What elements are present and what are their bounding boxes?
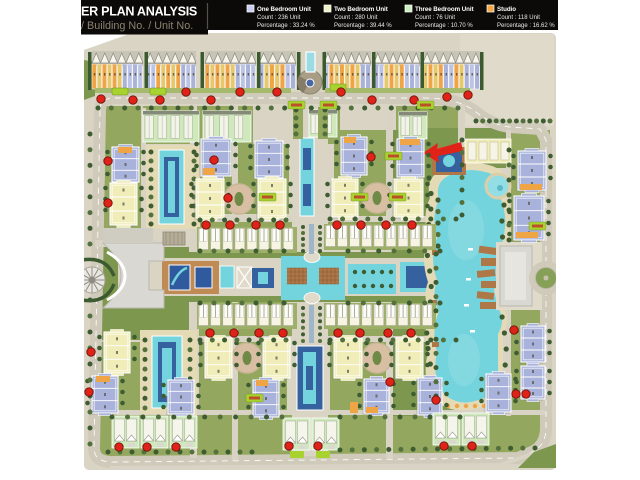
svg-text:Percentage : 16.62 %: Percentage : 16.62 % (497, 23, 555, 29)
svg-text:Count : 118 Unit: Count : 118 Unit (497, 15, 540, 21)
svg-text:Two Bedroom Unit: Two Bedroom Unit (334, 6, 388, 13)
svg-text:Percentage : 39.44 %: Percentage : 39.44 % (334, 23, 392, 29)
svg-text:Count : 76 Unit: Count : 76 Unit (415, 15, 455, 21)
svg-text:One Bedroom Unit: One Bedroom Unit (257, 6, 311, 13)
svg-text:Percentage : 33.24 %: Percentage : 33.24 % (257, 23, 315, 29)
svg-text:ER PLAN ANALYSIS: ER PLAN ANALYSIS (81, 5, 197, 19)
svg-text:Studio: Studio (497, 6, 516, 13)
svg-text:/ Building No. / Unit No.: / Building No. / Unit No. (81, 20, 193, 32)
svg-text:Count : 236 Unit: Count : 236 Unit (257, 15, 301, 21)
svg-text:Three Bedroom Unit: Three Bedroom Unit (415, 6, 474, 13)
svg-text:Percentage : 10.70 %: Percentage : 10.70 % (415, 23, 473, 29)
svg-text:Count : 280 Unit: Count : 280 Unit (334, 15, 378, 21)
